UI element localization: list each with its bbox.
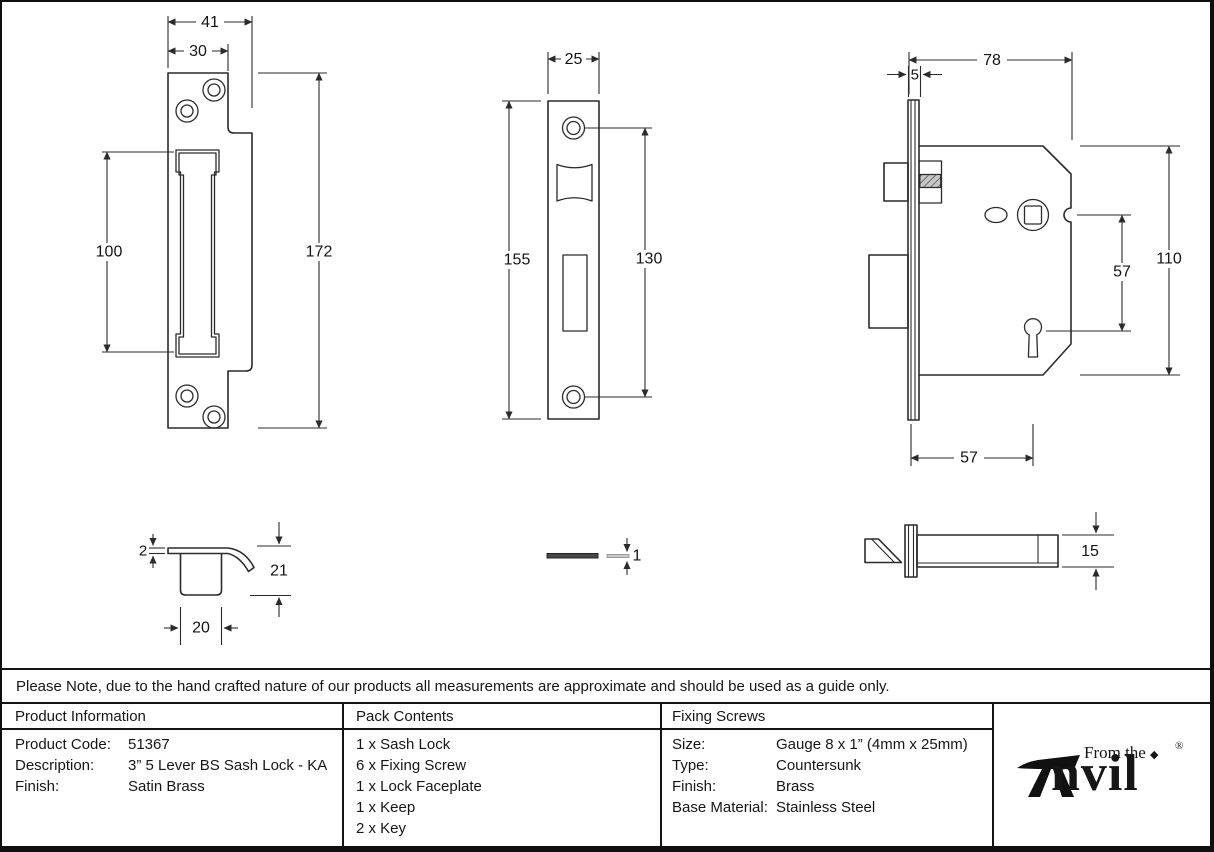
- faceplate-screw-holes: [563, 117, 585, 408]
- row-value: Countersunk: [776, 755, 861, 776]
- dim-faceplate-height: 155: [501, 101, 541, 419]
- lock-body-drawing: 78 5 110: [869, 51, 1187, 467]
- spindle-follower-circle: [1018, 200, 1049, 231]
- dim-keep-plate-width: 30: [168, 42, 228, 71]
- faceplate-profile-drawing: 1: [547, 538, 642, 575]
- dim-label-30: 30: [189, 43, 207, 60]
- table-row: Product Code: 51367: [15, 734, 342, 755]
- list-item: 2 x Key: [356, 818, 660, 839]
- latch-bolt: [884, 163, 908, 201]
- product-info-table: Product Information Product Code: 51367 …: [2, 704, 1210, 846]
- faceplate-latch-opening: [557, 165, 592, 202]
- dim-faceplate-width: 25: [548, 50, 599, 94]
- logo-brand-text: nvil: [1051, 748, 1139, 800]
- dim-spindle-to-keyhole: 57: [1046, 215, 1136, 331]
- row-label: Size:: [672, 734, 776, 755]
- dim-label-21: 21: [270, 563, 288, 580]
- dim-label-172: 172: [306, 244, 333, 261]
- dim-keep-overall-height: 172: [258, 73, 337, 428]
- dim-label-41: 41: [201, 14, 219, 31]
- dim-label-15: 15: [1081, 543, 1099, 560]
- row-value: Brass: [776, 776, 814, 797]
- dim-label-110: 110: [1156, 251, 1182, 268]
- keep-profile-box: [181, 554, 222, 595]
- dim-label-57-vertical: 57: [1113, 264, 1131, 281]
- brand-logo-cell: From the ◆ nvil ®: [994, 704, 1210, 846]
- dim-label-2: 2: [139, 543, 147, 560]
- pack-contents-column: Pack Contents 1 x Sash Lock 6 x Fixing S…: [344, 704, 662, 846]
- product-information-column: Product Information Product Code: 51367 …: [2, 704, 344, 846]
- technical-drawing-svg: 41 30 100 172: [2, 2, 1210, 668]
- dim-keep-slot-height: 100: [94, 152, 174, 352]
- spindle-square-hole: [1025, 206, 1042, 224]
- lock-profile-faceplate: [905, 525, 917, 577]
- row-label: Type:: [672, 755, 776, 776]
- technical-drawing-area: 41 30 100 172: [2, 2, 1210, 668]
- table-row: Type: Countersunk: [672, 755, 992, 776]
- row-value: Satin Brass: [128, 776, 205, 797]
- pack-contents-header: Pack Contents: [344, 704, 660, 730]
- fixing-screws-body: Size: Gauge 8 x 1” (4mm x 25mm) Type: Co…: [662, 730, 992, 818]
- row-value: 51367: [128, 734, 170, 755]
- dim-keep-box-width: 20: [164, 607, 238, 645]
- list-item: 1 x Lock Faceplate: [356, 776, 660, 797]
- table-row: Finish: Brass: [672, 776, 992, 797]
- dim-label-155: 155: [504, 252, 531, 269]
- dim-backset: 57: [911, 424, 1033, 467]
- latch-spring-hatch: [920, 175, 941, 188]
- faceplate-profile-bar: [547, 554, 598, 559]
- dim-label-5: 5: [911, 67, 919, 84]
- dim-keep-plate-thickness: 2: [139, 534, 165, 568]
- table-row: Base Material: Stainless Steel: [672, 797, 992, 818]
- dim-lock-case-depth: 78: [909, 51, 1072, 140]
- dim-lock-faceplate-lip: 5: [887, 66, 942, 97]
- list-item: 1 x Sash Lock: [356, 734, 660, 755]
- row-label: Product Code:: [15, 734, 128, 755]
- keep-slot-outer: [176, 150, 219, 357]
- dim-label-20: 20: [192, 620, 210, 637]
- row-value: 3” 5 Lever BS Sash Lock - KA: [128, 755, 327, 776]
- row-value: Stainless Steel: [776, 797, 875, 818]
- row-label: Finish:: [672, 776, 776, 797]
- fixing-screws-column: Fixing Screws Size: Gauge 8 x 1” (4mm x …: [662, 704, 994, 846]
- fixing-screws-header: Fixing Screws: [662, 704, 992, 730]
- list-item: 6 x Fixing Screw: [356, 755, 660, 776]
- dim-keep-depth: 21: [250, 522, 291, 617]
- dim-label-78: 78: [983, 52, 1001, 69]
- keyhole: [1025, 319, 1042, 357]
- row-label: Description:: [15, 755, 128, 776]
- dim-faceplate-screw-spacing: 130: [585, 128, 666, 397]
- pack-contents-body: 1 x Sash Lock 6 x Fixing Screw 1 x Lock …: [344, 730, 660, 839]
- lock-profile-drawing: 15: [865, 512, 1114, 590]
- product-information-body: Product Code: 51367 Description: 3” 5 Le…: [2, 730, 342, 797]
- measurement-disclaimer-note: Please Note, due to the hand crafted nat…: [2, 668, 1210, 704]
- dim-label-130: 130: [636, 251, 663, 268]
- row-label: Base Material:: [672, 797, 776, 818]
- dim-label-25: 25: [565, 51, 583, 68]
- registered-trademark-icon: ®: [1175, 740, 1183, 752]
- lock-profile-case: [917, 535, 1058, 567]
- keep-profile-drawing: 2 21 20: [139, 522, 291, 645]
- table-row: Description: 3” 5 Lever BS Sash Lock - K…: [15, 755, 342, 776]
- note-text: Please Note, due to the hand crafted nat…: [16, 678, 890, 695]
- deadbolt: [869, 255, 908, 328]
- keep-front-drawing: 41 30 100 172: [94, 13, 337, 428]
- dim-lock-case-height: 110: [1080, 146, 1187, 375]
- faceplate-deadbolt-opening: [563, 255, 587, 331]
- product-information-header: Product Information: [2, 704, 342, 730]
- table-row: Size: Gauge 8 x 1” (4mm x 25mm): [672, 734, 992, 755]
- faceplate-front-drawing: 25 155 130: [501, 50, 666, 419]
- keep-slot-inner: [179, 153, 216, 354]
- dim-label-1: 1: [633, 548, 642, 565]
- table-row: Finish: Satin Brass: [15, 776, 342, 797]
- from-the-anvil-logo: From the ◆ nvil ®: [994, 704, 1210, 846]
- faceplate-outline: [548, 101, 599, 419]
- spec-sheet-page: 41 30 100 172: [0, 0, 1214, 852]
- logo-diamond-icon: ◆: [1150, 748, 1158, 761]
- lock-faceplate-bar: [908, 100, 919, 420]
- row-label: Finish:: [15, 776, 128, 797]
- dim-label-100: 100: [96, 244, 123, 261]
- faceplate-profile-extension: [607, 555, 629, 558]
- dim-label-57-backset: 57: [960, 450, 978, 467]
- fixing-hole-oval: [985, 208, 1007, 223]
- list-item: 1 x Keep: [356, 797, 660, 818]
- dim-lock-case-thickness: 15: [1062, 512, 1114, 590]
- row-value: Gauge 8 x 1” (4mm x 25mm): [776, 734, 968, 755]
